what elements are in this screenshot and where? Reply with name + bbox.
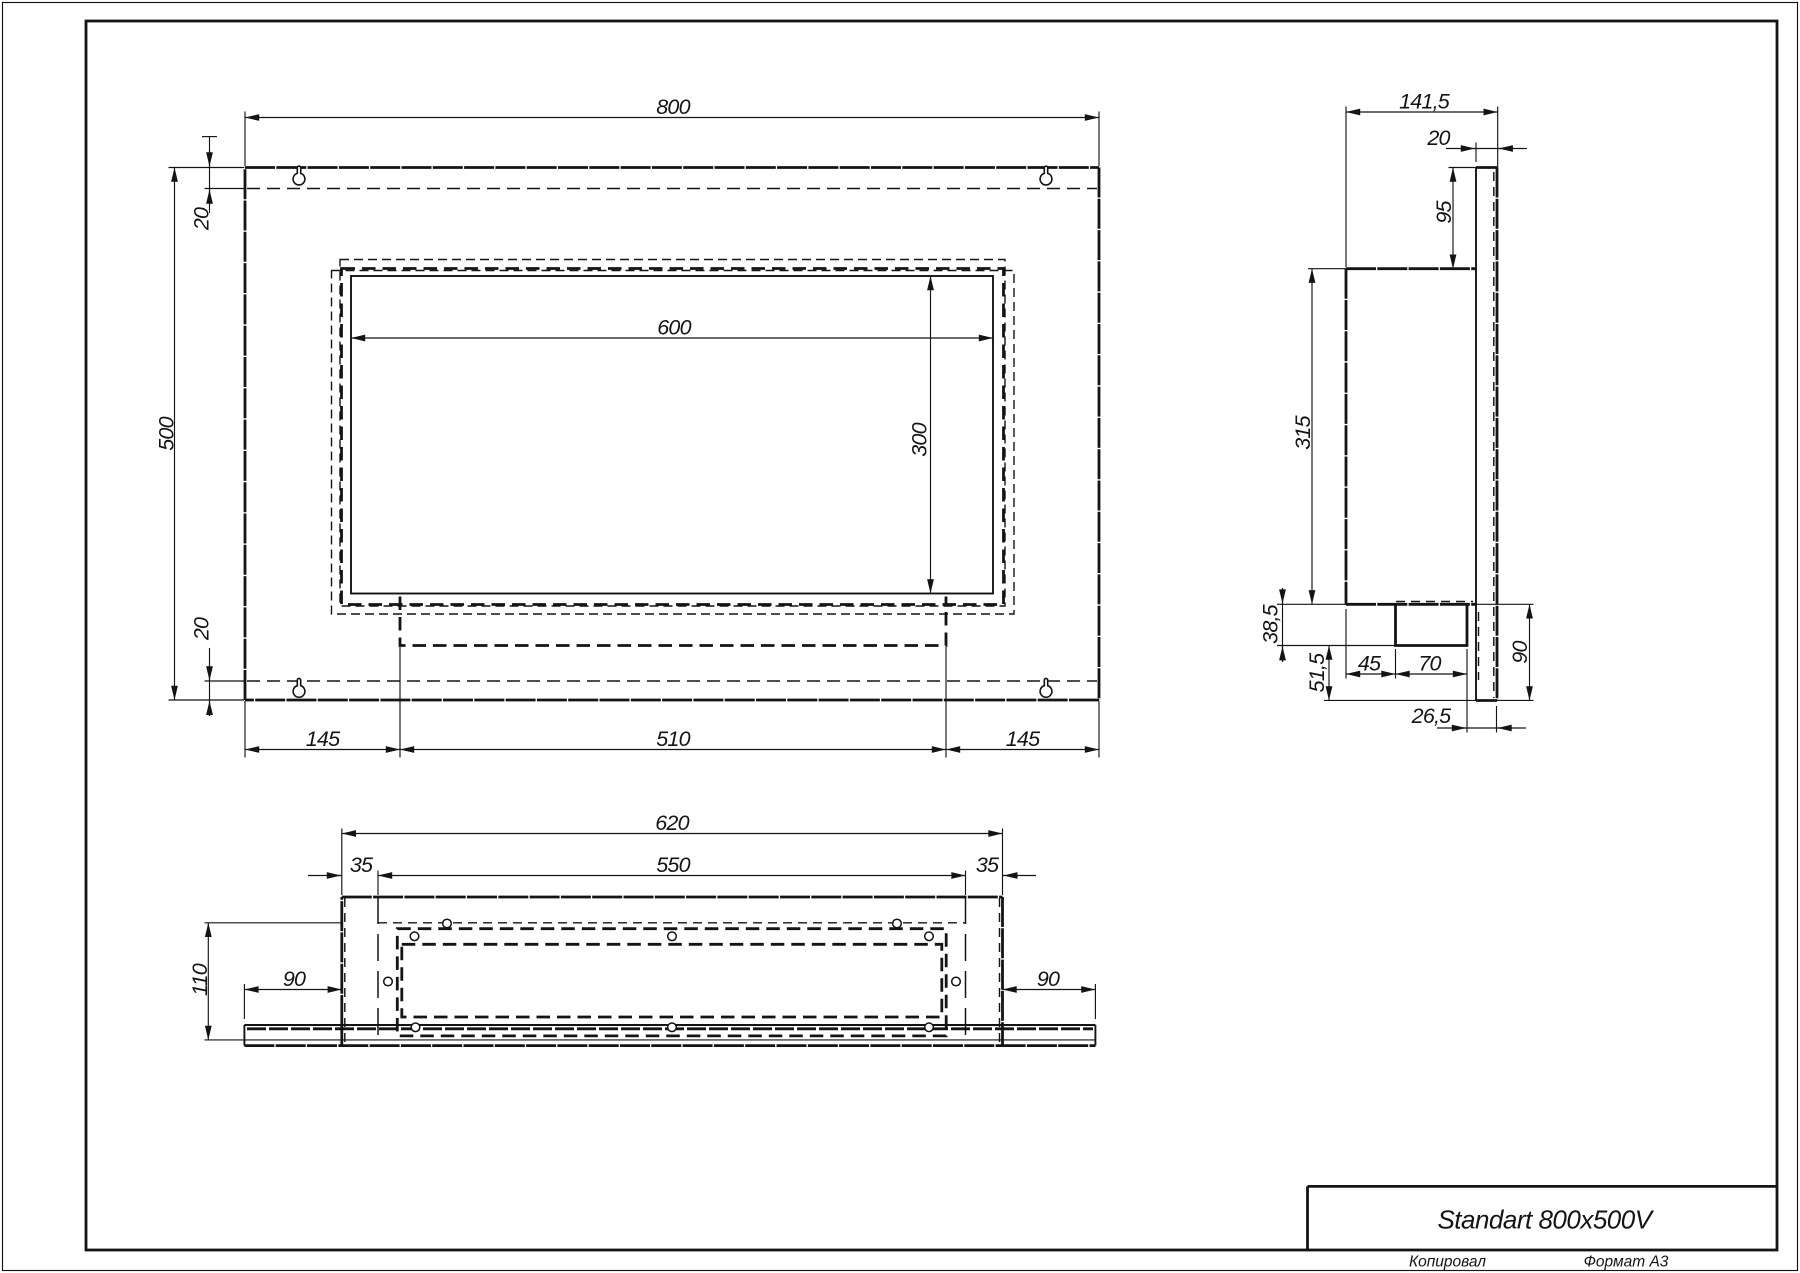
svg-text:300: 300 (908, 422, 932, 456)
svg-text:35: 35 (976, 853, 1000, 877)
svg-text:90: 90 (1508, 641, 1532, 664)
svg-text:110: 110 (188, 963, 212, 996)
svg-text:141,5: 141,5 (1399, 90, 1451, 114)
svg-text:145: 145 (306, 727, 341, 751)
svg-text:51,5: 51,5 (1305, 652, 1329, 692)
svg-text:510: 510 (656, 727, 690, 751)
svg-text:38,5: 38,5 (1259, 603, 1283, 643)
svg-text:600: 600 (657, 316, 691, 340)
svg-text:Standart 800x500V: Standart 800x500V (1437, 1205, 1654, 1235)
svg-text:26,5: 26,5 (1411, 704, 1452, 728)
svg-text:Формат А3: Формат А3 (1584, 1254, 1669, 1271)
svg-text:800: 800 (656, 95, 690, 119)
svg-text:500: 500 (155, 416, 179, 450)
svg-text:20: 20 (190, 617, 214, 641)
svg-text:Копировал: Копировал (1409, 1254, 1486, 1271)
svg-text:45: 45 (1358, 652, 1382, 676)
svg-text:35: 35 (350, 853, 374, 877)
svg-text:20: 20 (190, 207, 214, 231)
svg-text:90: 90 (283, 967, 306, 991)
svg-text:620: 620 (655, 811, 689, 835)
svg-text:90: 90 (1037, 967, 1060, 991)
svg-text:550: 550 (656, 853, 690, 877)
svg-text:70: 70 (1418, 652, 1441, 676)
svg-text:20: 20 (1426, 126, 1450, 150)
svg-text:145: 145 (1006, 727, 1041, 751)
svg-text:315: 315 (1291, 414, 1315, 449)
svg-text:95: 95 (1432, 200, 1456, 224)
